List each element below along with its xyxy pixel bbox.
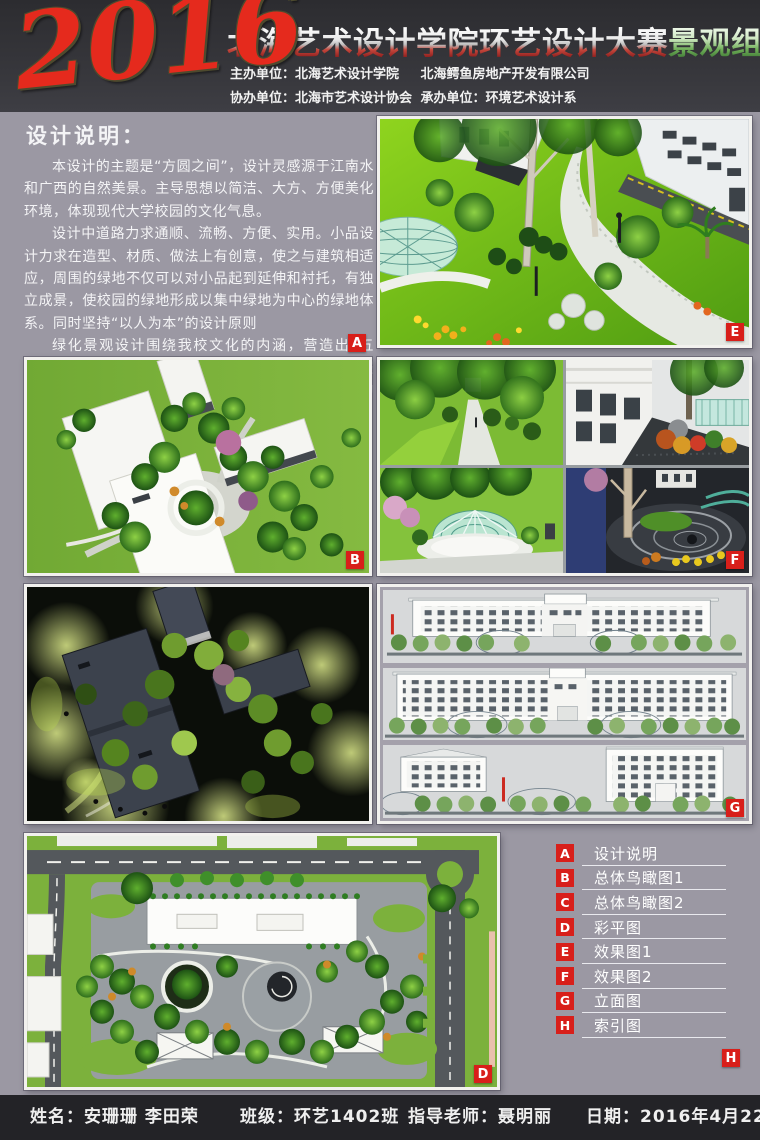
legend-label-e: 效果图1	[594, 941, 653, 962]
legend-row-b: B 总体鸟瞰图1	[548, 866, 754, 891]
render-effect2-grid	[380, 360, 749, 573]
date-value: 2016年4月22日	[640, 1107, 760, 1127]
legend-row-e: E 效果图1	[548, 939, 754, 964]
undertaker: 承办单位：环境艺术设计系	[421, 91, 577, 106]
co-organizer: 协办单位：北海市艺术设计协会	[230, 87, 416, 106]
legend-label-c: 总体鸟瞰图2	[594, 892, 685, 913]
legend-letter-d: D	[556, 918, 574, 936]
legend-row-f: F 效果图2	[548, 964, 754, 989]
render-birdseye-day-image	[27, 360, 369, 573]
render-effect1-image	[380, 119, 749, 345]
site-plan-image	[27, 836, 497, 1087]
legend-letter-e: E	[556, 943, 574, 961]
elevation-drawing-2	[383, 668, 746, 741]
teacher-value: 聂明丽	[498, 1107, 552, 1127]
badge-d: D	[474, 1065, 492, 1083]
elevation-drawings-panel: G	[377, 584, 752, 824]
design-notes-paragraph: 设计中道路力求通顺、流畅、方便、实用。小品设计力求在造型、材质、做法上有创意，使…	[24, 223, 374, 335]
design-notes-block: 设计说明： 本设计的主题是“方圆之间”，设计灵感源于江南水和广西的自然美景。主导…	[24, 120, 374, 350]
footer-teacher: 指导老师：聂明丽	[408, 1095, 552, 1140]
legend-letter-g: G	[556, 992, 574, 1010]
name-label: 姓名：	[30, 1107, 84, 1127]
legend-row-a: A 设计说明	[548, 841, 754, 866]
teacher-label: 指导老师：	[408, 1107, 498, 1127]
render-birdseye-night-image	[27, 587, 369, 821]
legend-label-b: 总体鸟瞰图1	[594, 867, 685, 888]
organizer-line-2: 协办单位：北海市艺术设计协会 承办单位：环境艺术设计系	[230, 87, 577, 106]
badge-f: F	[726, 551, 744, 569]
legend-row-h: H 索引图	[548, 1013, 754, 1038]
render-path-through-trees	[380, 360, 563, 465]
legend-label-h: 索引图	[594, 1015, 642, 1036]
badge-b: B	[346, 551, 364, 569]
elevation-drawing-1	[383, 590, 746, 663]
badge-a: A	[348, 334, 366, 352]
legend-letter-b: B	[556, 869, 574, 887]
footer-name: 姓名：安珊珊 李田荣	[30, 1095, 199, 1140]
class-value: 环艺1402班	[294, 1107, 399, 1127]
render-spiral-plaza	[566, 468, 749, 573]
legend-row-d: D 彩平图	[548, 915, 754, 940]
legend-label-d: 彩平图	[594, 917, 642, 938]
elevation-drawing-3	[383, 745, 746, 818]
date-label: 日期：	[586, 1107, 640, 1127]
legend-row-c: C 总体鸟瞰图2	[548, 890, 754, 915]
elevation-strip-2	[383, 668, 746, 741]
legend-label-a: 设计说明	[594, 843, 658, 864]
elevation-strip-3	[383, 745, 746, 818]
render-birdseye-night-panel	[24, 584, 372, 824]
badge-h: H	[722, 1049, 740, 1067]
legend-underline	[582, 1037, 726, 1038]
elevation-strip-1	[383, 590, 746, 663]
legend-label-f: 效果图2	[594, 966, 653, 987]
render-building-entrance	[566, 360, 749, 465]
render-glass-dome-pavilion	[380, 468, 563, 573]
legend-letter-c: C	[556, 893, 574, 911]
legend-label-g: 立面图	[594, 990, 642, 1011]
badge-e: E	[726, 323, 744, 341]
render-effect2-panel: F	[377, 357, 752, 576]
site-plan-panel: D	[24, 833, 500, 1090]
title-group-tag: 景观组	[668, 26, 760, 62]
legend-index-block: A 设计说明 B 总体鸟瞰图1 C 总体鸟瞰图2 D 彩平图 E 效果图1 F …	[548, 841, 754, 1091]
badge-g: G	[726, 799, 744, 817]
competition-poster: 北海艺术设计学院环艺设计大赛景观组 主办单位：北海艺术设计学院 北海鳄鱼房地产开…	[0, 0, 760, 1140]
legend-letter-f: F	[556, 967, 574, 985]
poster-footer: 姓名：安珊珊 李田荣 班级：环艺1402班 指导老师：聂明丽 日期：2016年4…	[0, 1095, 760, 1140]
legend-letter-h: H	[556, 1016, 574, 1034]
name-value: 安珊珊 李田荣	[84, 1107, 199, 1127]
design-notes-title: 设计说明：	[26, 120, 374, 150]
poster-title: 北海艺术设计学院环艺设计大赛景观组	[227, 18, 760, 63]
footer-date: 日期：2016年4月22日	[586, 1095, 760, 1140]
legend-letter-a: A	[556, 844, 574, 862]
class-label: 班级：	[240, 1107, 294, 1127]
render-birdseye-day-panel: B	[24, 357, 372, 576]
design-notes-paragraph: 本设计的主题是“方圆之间”，设计灵感源于江南水和广西的自然美景。主导思想以简洁、…	[24, 156, 374, 223]
render-effect1-panel: E	[377, 116, 752, 348]
legend-row-g: G 立面图	[548, 989, 754, 1014]
footer-class: 班级：环艺1402班	[240, 1095, 399, 1140]
host-developer: 北海鳄鱼房地产开发有限公司	[421, 67, 590, 82]
